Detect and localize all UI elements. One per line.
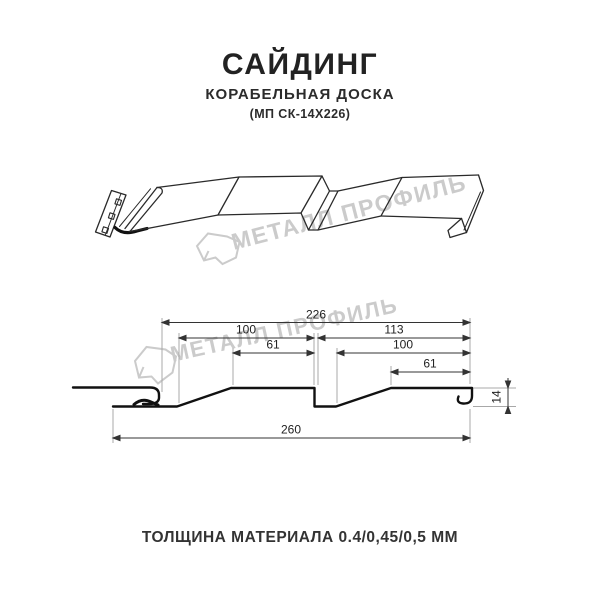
watermark-text: МЕТАЛЛ ПРОФИЛЬ [168,292,400,367]
thickness-note: ТОЛЩИНА МАТЕРИАЛА 0.4/0,45/0,5 ММ [0,529,600,547]
watermark-text: МЕТАЛЛ ПРОФИЛЬ [229,169,470,255]
section-profile [73,388,472,407]
svg-text:МЕТАЛЛ ПРОФИЛЬ: МЕТАЛЛ ПРОФИЛЬ [229,169,470,255]
dim-label-61-right: 61 [423,357,437,371]
drawing-canvas: САЙДИНГ КОРАБЕЛЬНАЯ ДОСКА (МП СК-14Х226)… [0,0,600,600]
dim-label-113: 113 [384,323,403,337]
svg-text:МЕТАЛЛ ПРОФИЛЬ: МЕТАЛЛ ПРОФИЛЬ [168,292,400,367]
dim-label-100-right: 100 [393,338,413,352]
dim-label-260: 260 [281,423,301,437]
extension-lines [113,318,516,443]
dimension-lines [113,320,511,441]
dim-label-14: 14 [490,390,504,404]
dim-label-100-left: 100 [236,323,256,337]
dim-label-226: 226 [306,308,326,322]
technical-drawing: МЕТАЛЛ ПРОФИЛЬ [0,0,600,600]
dim-label-61-left: 61 [266,338,280,352]
